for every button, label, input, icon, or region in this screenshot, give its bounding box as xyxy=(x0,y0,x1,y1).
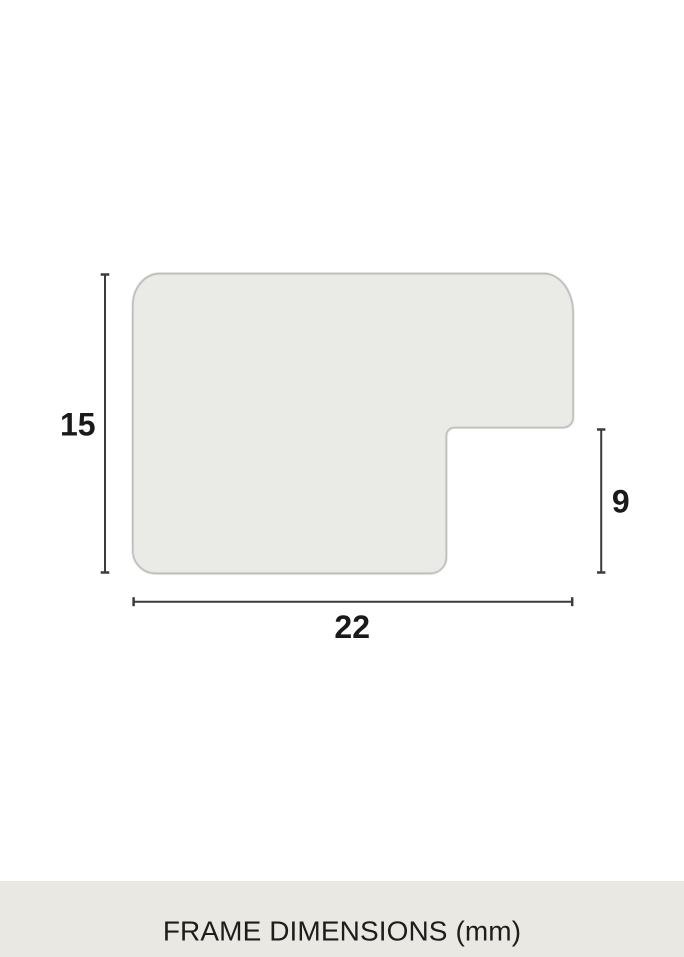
svg-text:FRAME DIMENSIONS (mm): FRAME DIMENSIONS (mm) xyxy=(163,915,521,946)
svg-text:15: 15 xyxy=(60,406,96,442)
svg-text:9: 9 xyxy=(612,484,630,520)
svg-text:22: 22 xyxy=(334,609,370,645)
